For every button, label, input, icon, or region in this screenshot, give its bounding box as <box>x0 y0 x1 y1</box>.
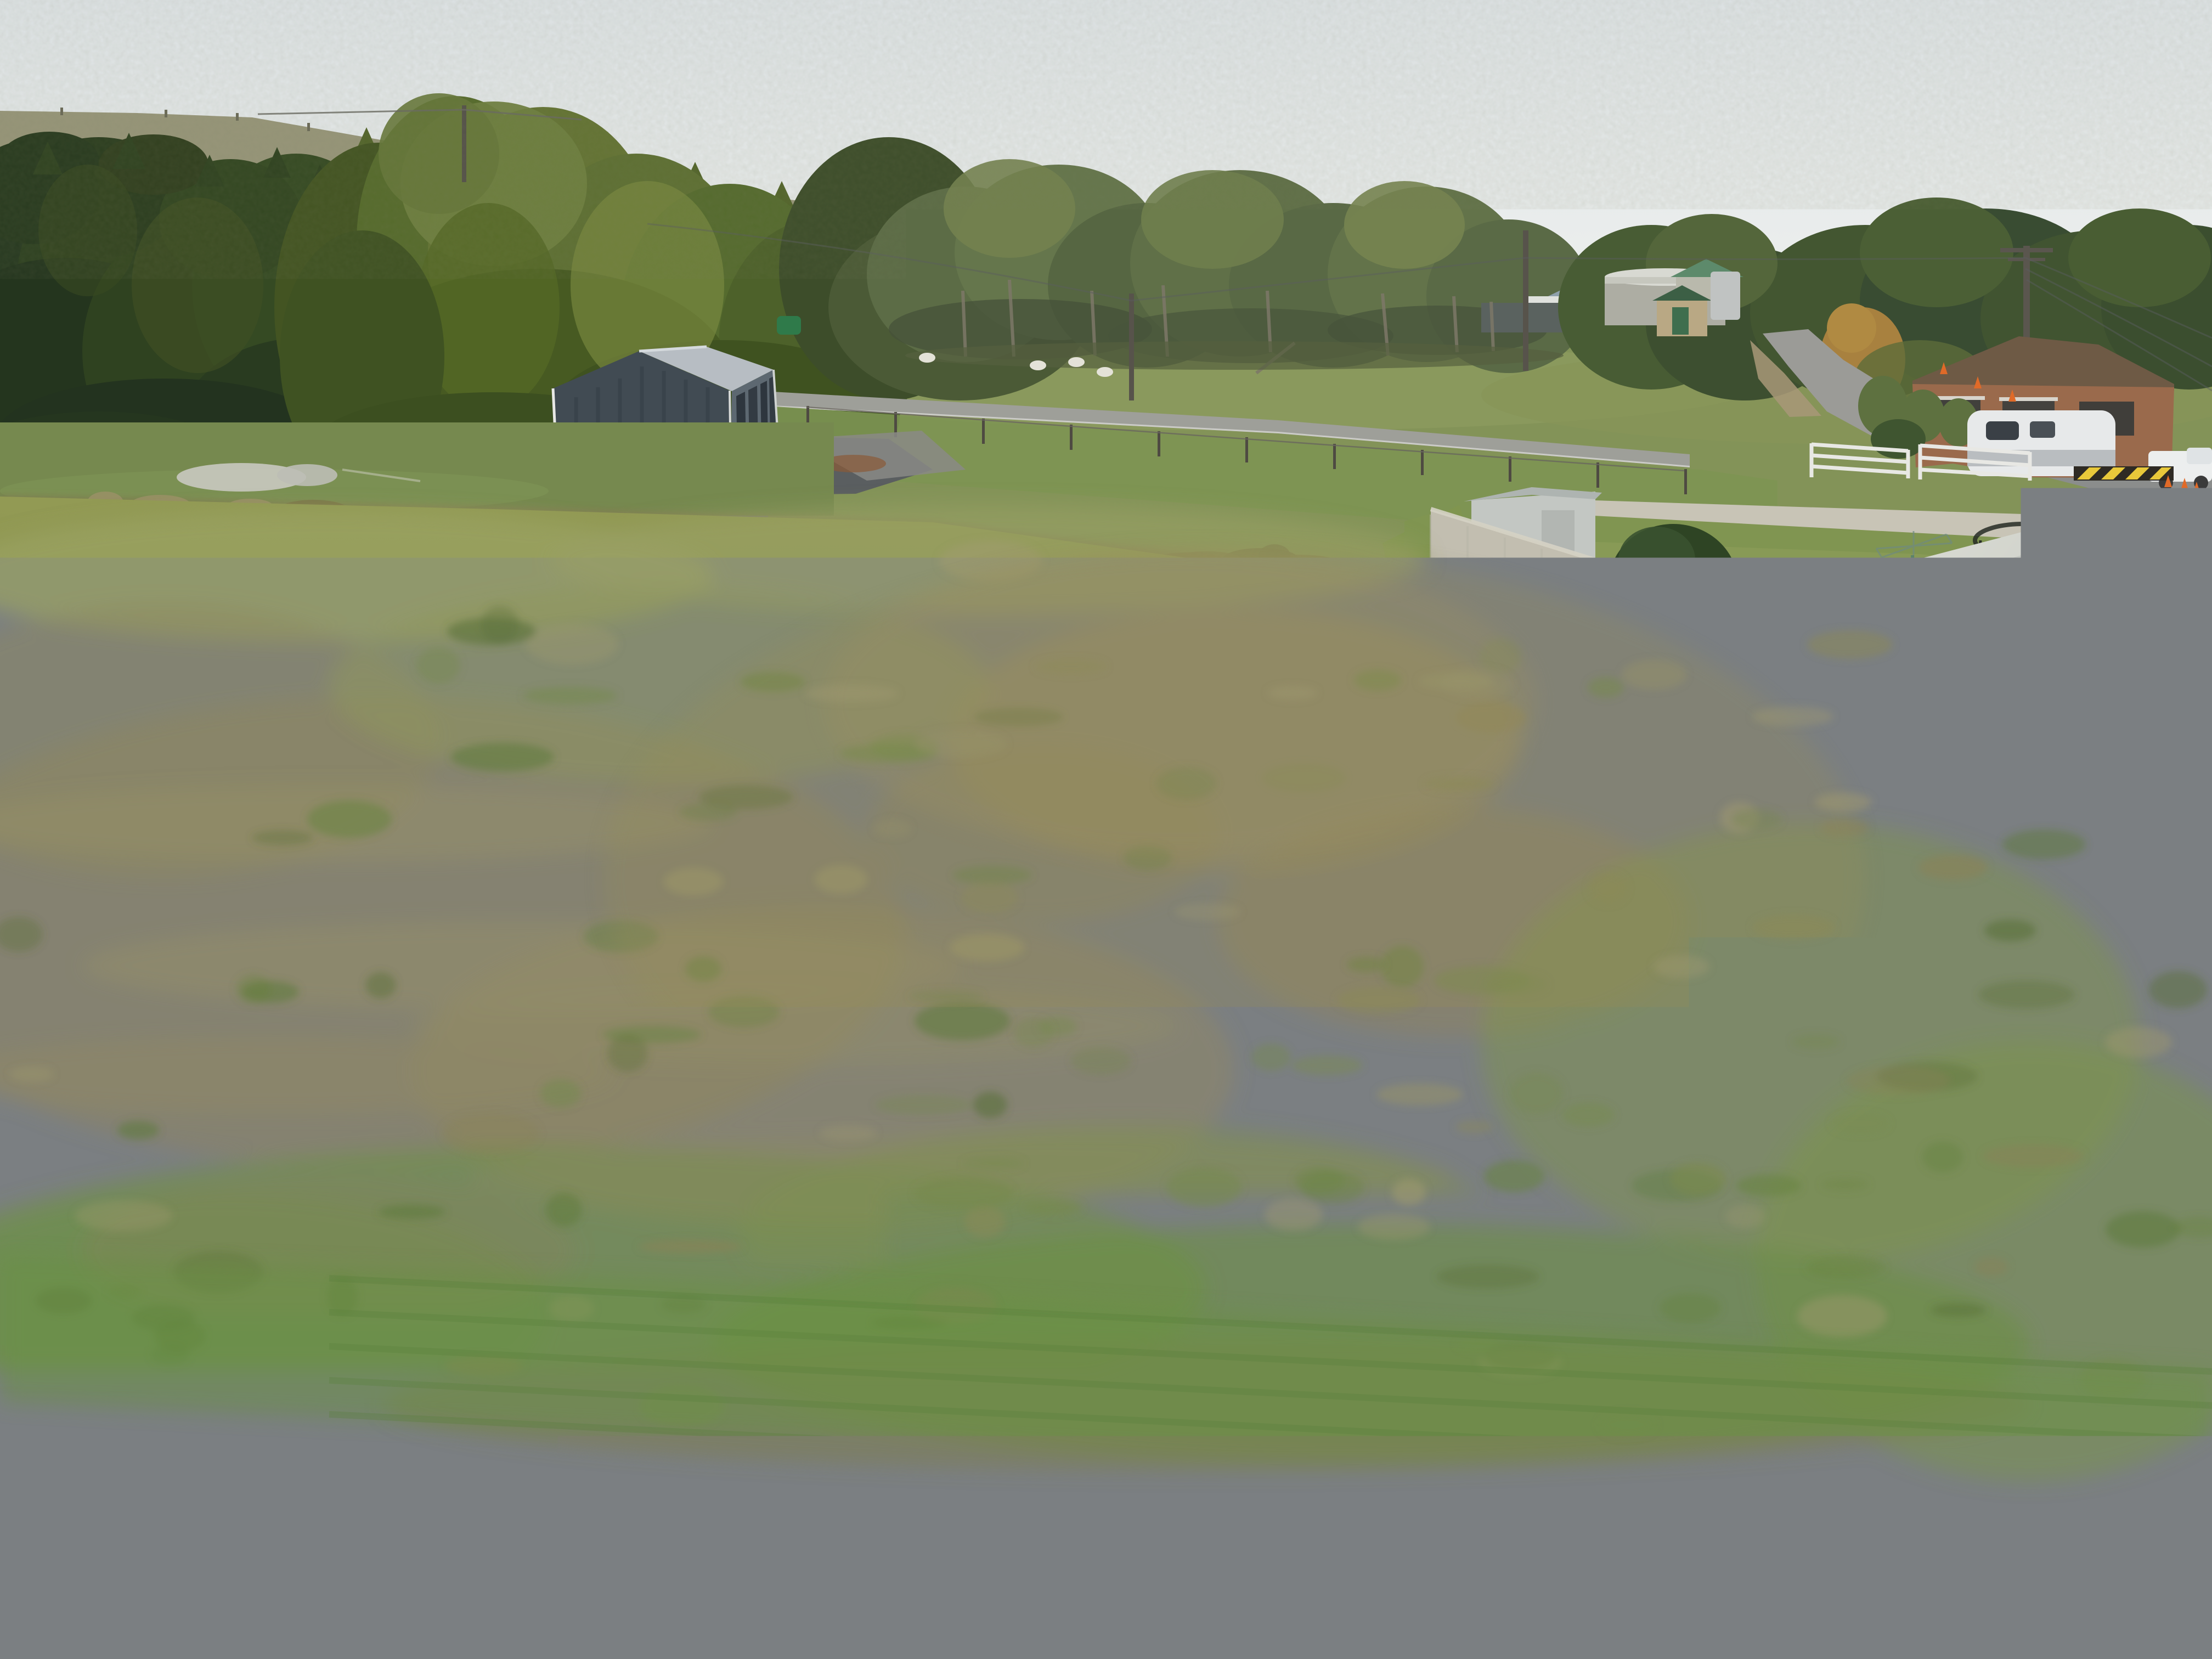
svg-text:2 Starr Place: 2 Starr Place <box>72 1443 467 1509</box>
